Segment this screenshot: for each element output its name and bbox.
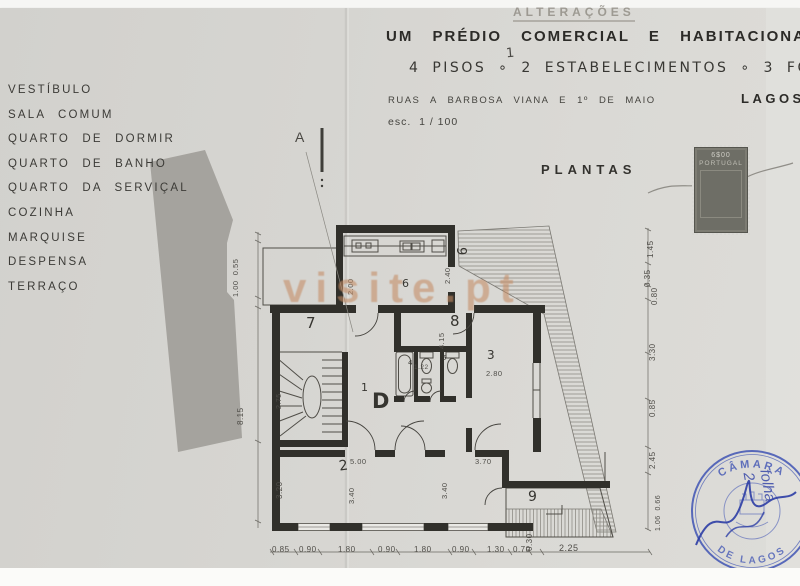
room-number-7: 7 xyxy=(306,314,316,332)
dim-bottom: 0.90 xyxy=(452,545,470,554)
windows xyxy=(298,524,488,531)
revision-stamp-text: ALTERAÇÕES xyxy=(513,5,635,22)
room-number-3: 3 xyxy=(487,348,495,362)
dim-bottom: 2.25 xyxy=(559,543,579,553)
scanned-floor-plan-sheet: CÂMARA DE LAGOS visite.pt ALTERAÇÕES UM … xyxy=(0,0,800,586)
dim-inner: 1.22 xyxy=(414,364,429,371)
dim-right: 0.80 xyxy=(650,287,659,305)
drawing-subtitle: 4 PISOS ∘ 2 ESTABELECIMENTOS ∘ 3 FOGOS xyxy=(409,60,800,76)
revenue-stamp-pattern xyxy=(700,170,742,218)
dim-bottom: 1.80 xyxy=(338,545,356,554)
dim-left: 3.20 xyxy=(275,481,284,499)
room-number-4: 4 xyxy=(408,359,412,367)
scale-label: esc. 1 / 100 xyxy=(388,116,458,128)
dim-right: 3.30 xyxy=(648,343,657,361)
revenue-stamp: 6$00 PORTUGAL xyxy=(694,147,748,233)
svg-text:DE LAGOS: DE LAGOS xyxy=(715,544,789,567)
section-marker-line xyxy=(321,128,323,187)
legend-item: VESTÍBULO xyxy=(8,78,189,103)
dim-inner: 3.70 xyxy=(475,457,492,466)
handwritten-correction: 1 xyxy=(505,46,515,62)
dim-inner: 5.00 xyxy=(350,457,367,466)
dim-left: 1.00 0.55 xyxy=(231,259,240,297)
legend-item: COZINHA xyxy=(8,201,189,226)
dim-bottom: 1.30 xyxy=(487,545,505,554)
section-marker-a: A xyxy=(295,129,304,145)
dim-right: 2.45 xyxy=(648,451,657,469)
drawing-title: UM PRÉDIO COMERCIAL E HABITACIONAL xyxy=(386,28,800,45)
legend-item: QUARTO DA SERVIÇAL xyxy=(8,176,189,201)
legend-item: QUARTO DE DORMIR xyxy=(8,127,189,152)
room-number-1: 1 xyxy=(361,381,368,394)
dim-inner: 4.15 xyxy=(437,332,446,349)
dim-right: 1.06 0.66 xyxy=(655,495,662,531)
room-number-8: 8 xyxy=(450,312,460,330)
dim-right: 0.85 xyxy=(648,399,657,417)
room-letter-d: D xyxy=(372,389,389,413)
dim-bottom: 1.80 xyxy=(414,545,432,554)
sheet-type-label: PLANTAS xyxy=(541,162,636,177)
stamp-arc-bottom-text: DE LAGOS xyxy=(715,544,789,567)
dim-left: 8.15 xyxy=(236,407,245,425)
municipal-stamp: CÂMARA DE LAGOS xyxy=(692,451,800,571)
legend-item: TERRAÇO xyxy=(8,275,189,300)
handwritten-sheet-note: folha 2 xyxy=(740,468,779,506)
legend-item: SALA COMUM xyxy=(8,103,189,128)
legend-item: QUARTO DE BANHO xyxy=(8,152,189,177)
dim-bottom: 0.85 xyxy=(272,545,290,554)
address-line: RUAS A BARBOSA VIANA E 1º DE MAIO xyxy=(388,95,656,106)
room-legend: VESTÍBULO SALA COMUM QUARTO DE DORMIR QU… xyxy=(8,78,189,299)
scan-bottom-margin xyxy=(0,568,800,586)
dim-inner: 2.80 xyxy=(486,369,503,378)
revenue-stamp-value: 6$00 xyxy=(695,152,747,159)
dim-right: 1.45 xyxy=(646,240,655,258)
legend-item: DESPENSA xyxy=(8,250,189,275)
door-arcs xyxy=(346,313,502,505)
dim-bottom: 0.90 xyxy=(299,545,317,554)
room-number-9-bottom: 9 xyxy=(528,489,537,505)
dim-right: 0.35 xyxy=(643,269,652,287)
room-number-9-top: 9 xyxy=(453,247,468,255)
city-label: LAGOS xyxy=(741,91,800,106)
room-number-5: 5 xyxy=(442,354,446,362)
revenue-stamp-country: PORTUGAL xyxy=(695,160,747,167)
watermark: visite.pt xyxy=(283,264,523,312)
dim-left: 2.75 xyxy=(276,393,283,409)
dim-inner: 3.40 xyxy=(440,482,449,499)
legend-item: MARQUISE xyxy=(8,226,189,251)
dim-bottom-rotated: 0.30 xyxy=(525,533,534,551)
dim-bottom: 0.90 xyxy=(378,545,396,554)
dim-inner: 3.40 xyxy=(347,487,356,504)
